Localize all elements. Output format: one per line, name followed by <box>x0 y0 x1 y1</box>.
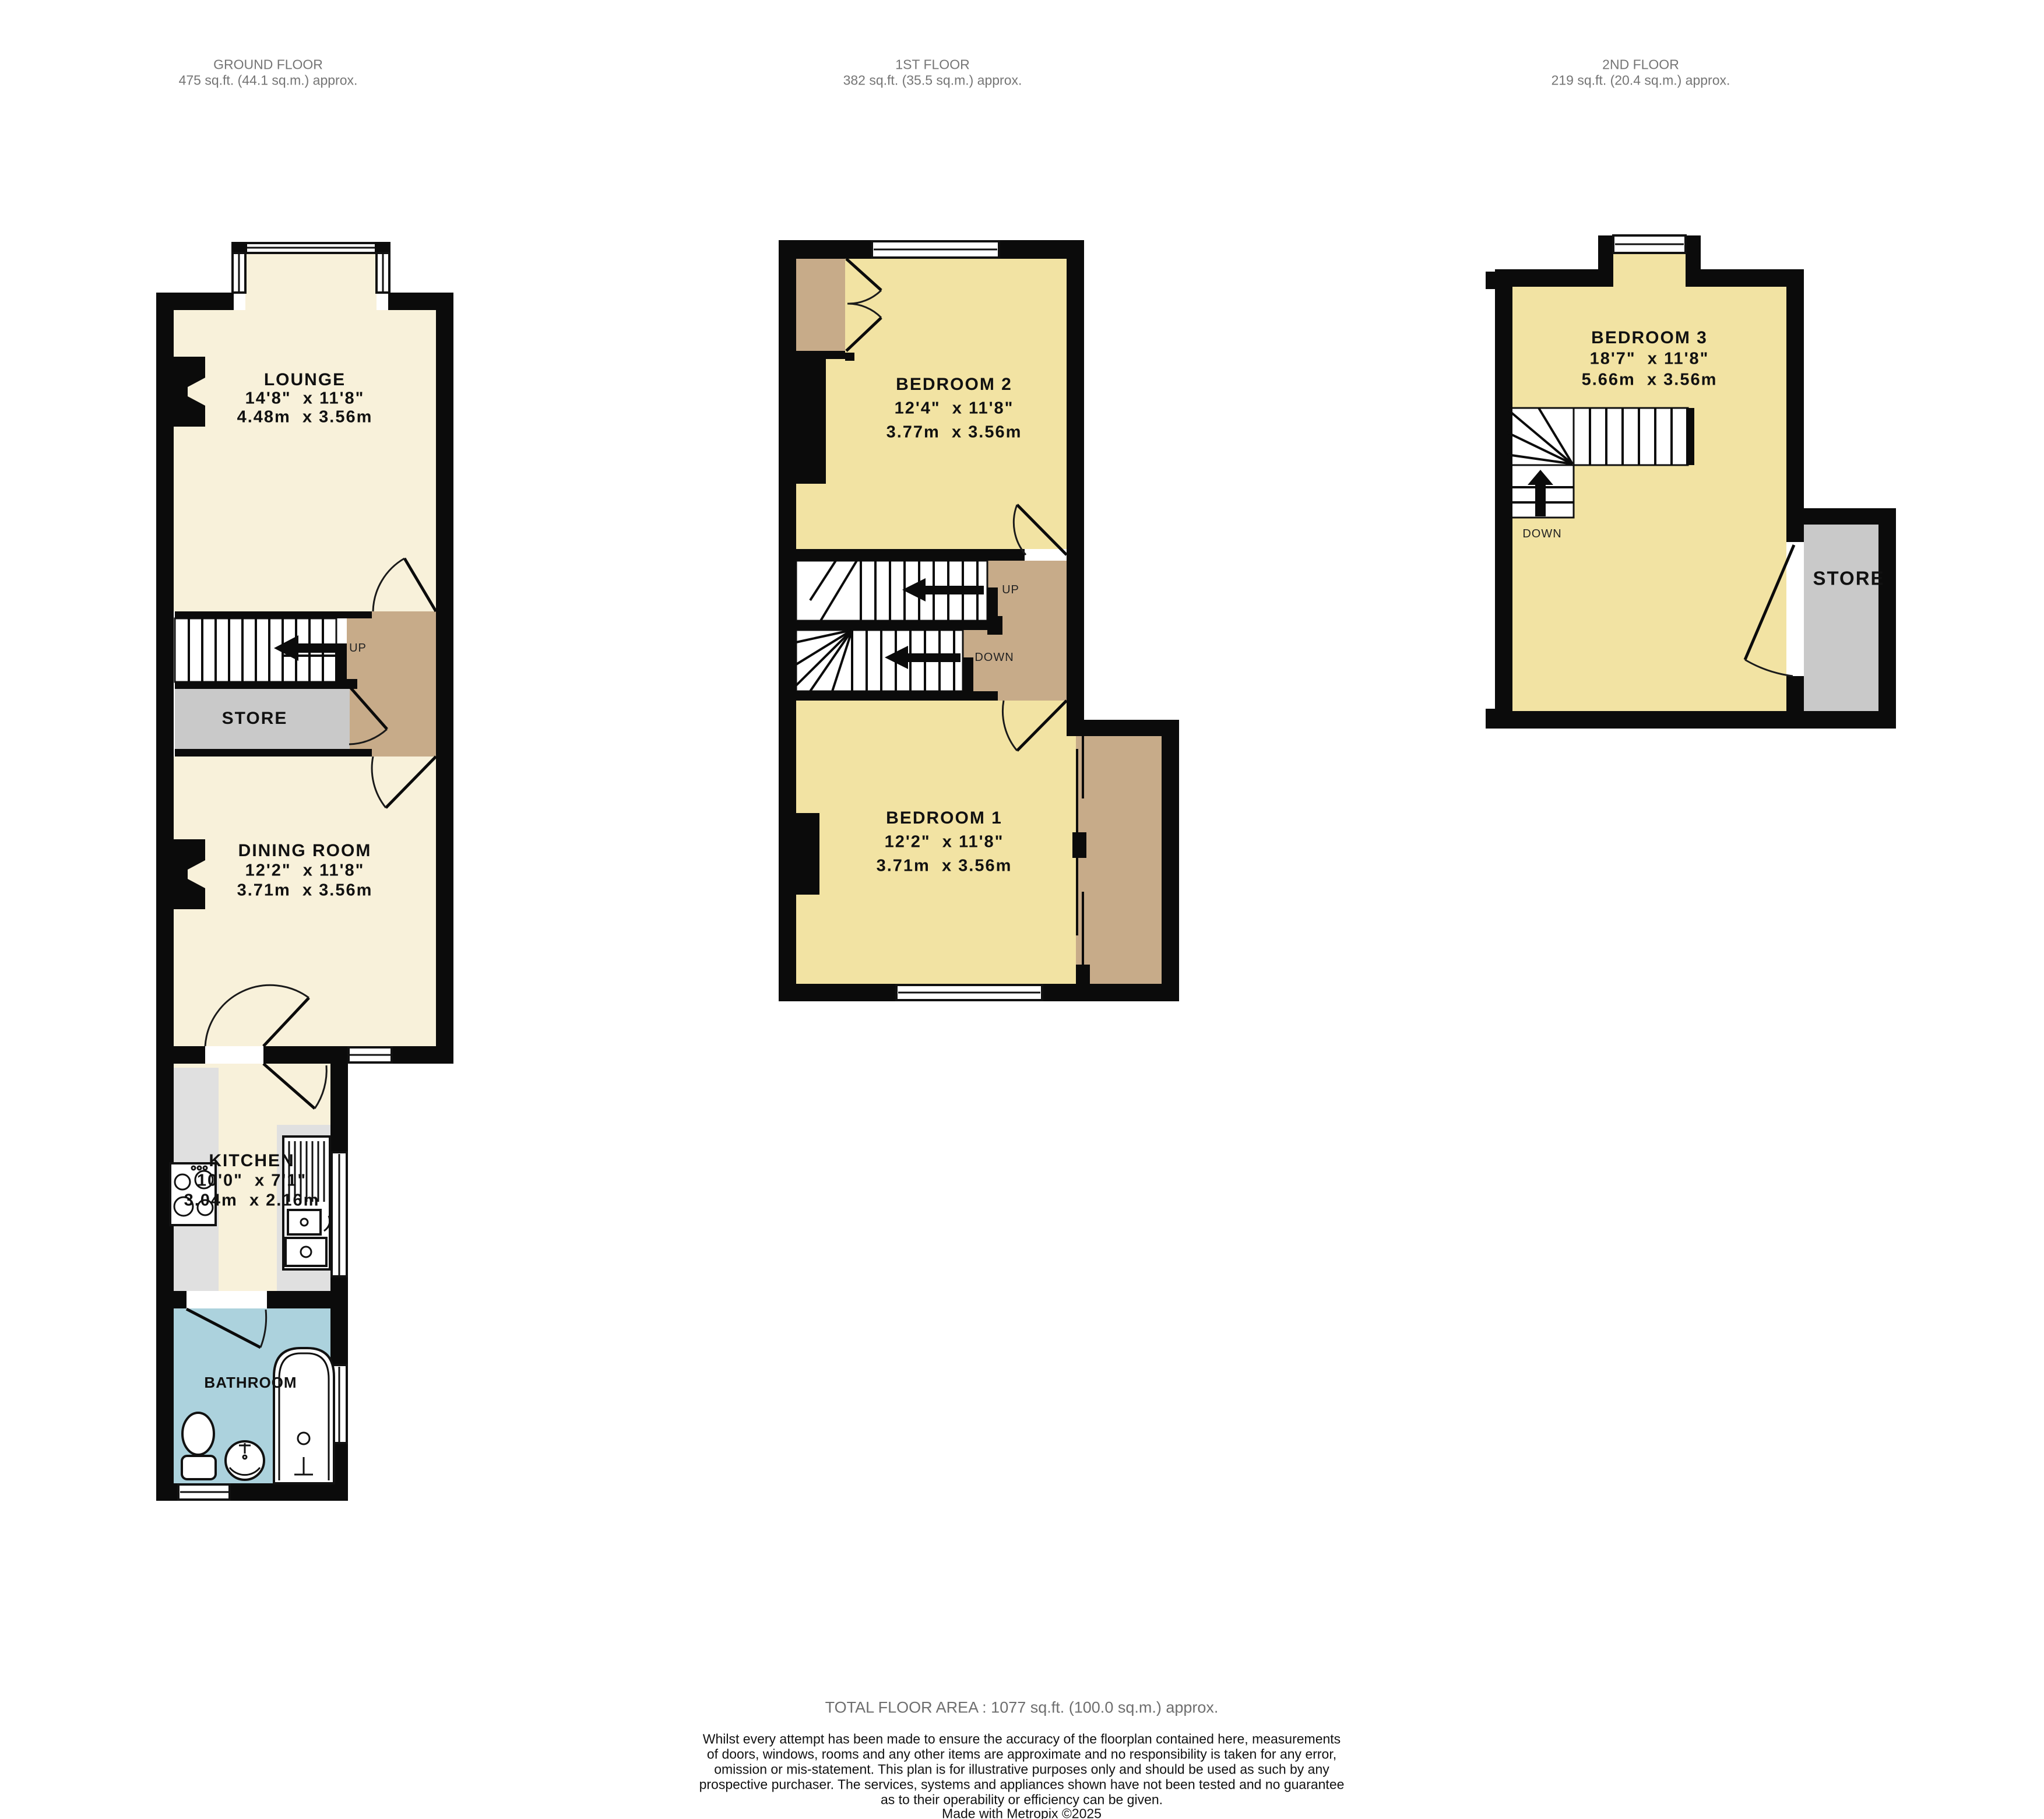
stairs-down-first-label: DOWN <box>974 652 1014 663</box>
dining-room-imperial: 12'2" x 11'8" <box>245 863 365 879</box>
total-floor-area: TOTAL FLOOR AREA : 1077 sq.ft. (100.0 sq… <box>825 1700 1219 1716</box>
ground-floor-area: 475 sq.ft. (44.1 sq.m.) approx. <box>179 74 358 87</box>
bedroom2-label: BEDROOM 2 <box>896 376 1012 393</box>
lounge-imperial: 14'8" x 11'8" <box>245 390 365 407</box>
lounge-floor <box>174 310 436 611</box>
bedroom2-window <box>872 241 999 258</box>
bedroom1-wardrobe <box>1076 736 1162 987</box>
first-floor-plan <box>773 233 1198 1014</box>
dining-window <box>349 1047 392 1062</box>
first-landing-floor <box>987 561 1067 712</box>
stairs-down-second-label: DOWN <box>1522 528 1561 540</box>
stairs-up-ground-label: UP <box>349 642 367 654</box>
second-floor-title: 2ND FLOOR <box>1602 58 1679 72</box>
bedroom3-label: BEDROOM 3 <box>1591 329 1708 347</box>
lounge-label: LOUNGE <box>264 371 346 389</box>
dining-room-metric: 3.71m x 3.56m <box>237 882 373 899</box>
bedroom2-imperial: 12'4" x 11'8" <box>895 400 1014 417</box>
hall-landing-floor <box>347 611 436 757</box>
bathroom-label: BATHROOM <box>204 1375 297 1390</box>
bedroom3-dormer-floor <box>1613 253 1686 288</box>
bedroom2-metric: 3.77m x 3.56m <box>886 424 1022 441</box>
store2-floor <box>1804 525 1878 711</box>
kitchen-metric: 3.04m x 2.16m <box>184 1192 320 1209</box>
kitchen-label: KITCHEN <box>209 1152 294 1170</box>
bedroom2-chimney-breast <box>779 358 826 484</box>
bedroom1-window <box>896 985 1042 1000</box>
bedroom3-imperial: 18'7" x 11'8" <box>1590 351 1709 368</box>
disclaimer-line-1: Whilst every attempt has been made to en… <box>703 1733 1341 1746</box>
first-floor-area: 382 sq.ft. (35.5 sq.m.) approx. <box>843 74 1022 87</box>
bedroom1-label: BEDROOM 1 <box>886 810 1002 827</box>
kitchen-window <box>332 1152 347 1276</box>
store-ground-label: STORE <box>222 710 288 727</box>
bedroom3-metric: 5.66m x 3.56m <box>1582 372 1718 389</box>
toilet-icon <box>182 1413 216 1479</box>
disclaimer-line-3: omission or mis-statement. This plan is … <box>714 1763 1329 1776</box>
metropix-credit: Made with Metropix ©2025 <box>942 1807 1102 1819</box>
bedroom1-imperial: 12'2" x 11'8" <box>885 834 1004 851</box>
kitchen-imperial: 10'0" x 7'1" <box>197 1173 307 1190</box>
bedroom1-chimney-breast <box>779 813 819 895</box>
bedroom2-closet <box>796 259 845 351</box>
floorplan-page: GROUND FLOOR 475 sq.ft. (44.1 sq.m.) app… <box>0 0 2044 1819</box>
second-floor-plan <box>1480 227 1906 740</box>
disclaimer-line-5: as to their operability or efficiency ca… <box>881 1793 1163 1807</box>
basin-icon <box>226 1441 264 1480</box>
bedroom3-dormer-window <box>1613 235 1686 253</box>
store-second-label: STORE <box>1813 569 1884 588</box>
lounge-metric: 4.48m x 3.56m <box>237 409 373 426</box>
lounge-bay-floor <box>245 253 377 311</box>
first-floor-title: 1ST FLOOR <box>895 58 969 72</box>
bathtub-icon <box>274 1348 334 1483</box>
dining-room-label: DINING ROOM <box>238 842 372 860</box>
disclaimer-line-2: of doors, windows, rooms and any other i… <box>707 1748 1336 1761</box>
disclaimer-line-4: prospective purchaser. The services, sys… <box>699 1778 1345 1792</box>
second-floor-area: 219 sq.ft. (20.4 sq.m.) approx. <box>1552 74 1730 87</box>
stairs-up-first-label: UP <box>1002 584 1019 596</box>
bedroom1-metric: 3.71m x 3.56m <box>877 858 1012 875</box>
bathroom-rear-window <box>178 1484 230 1500</box>
ground-floor-title: GROUND FLOOR <box>213 58 323 72</box>
